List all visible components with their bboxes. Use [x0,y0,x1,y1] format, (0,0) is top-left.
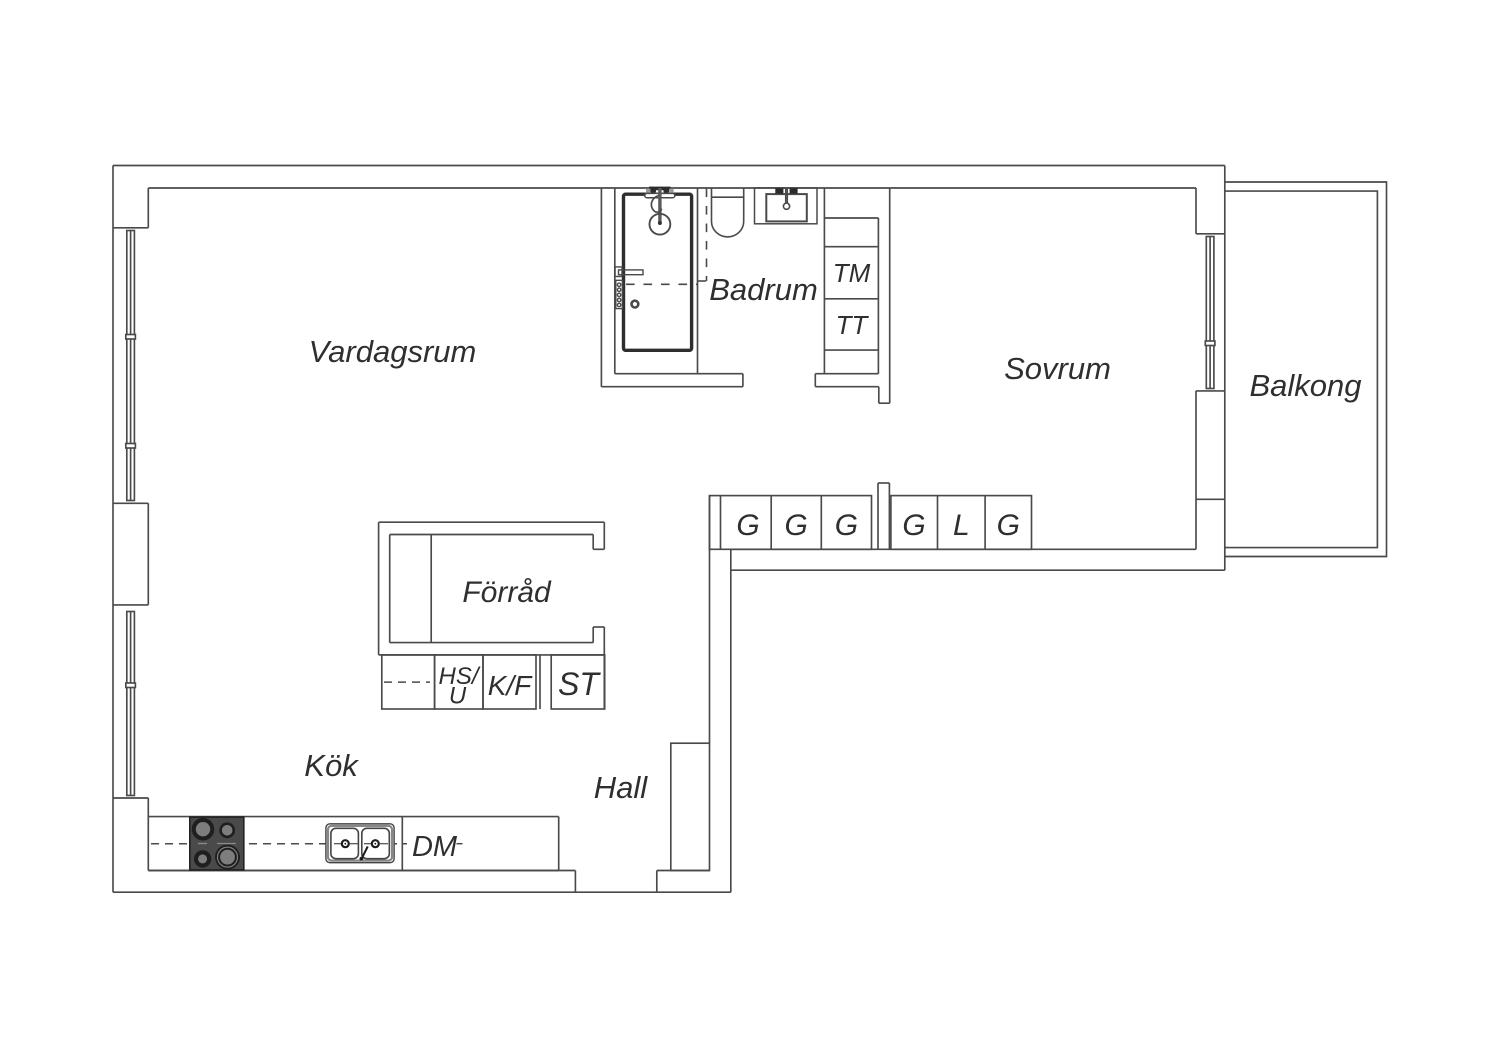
svg-text:G: G [902,509,925,542]
svg-text:DM: DM [412,831,458,863]
svg-text:Hall: Hall [594,770,649,805]
svg-text:Sovrum: Sovrum [1004,351,1111,386]
svg-text:Vardagsrum: Vardagsrum [309,334,477,369]
svg-text:Balkong: Balkong [1249,368,1361,403]
svg-text:Badrum: Badrum [709,272,818,307]
svg-text:TM: TM [833,258,871,288]
svg-text:ST: ST [558,666,601,702]
svg-text:G: G [997,509,1020,542]
svg-text:Förråd: Förråd [462,576,552,609]
svg-text:G: G [785,509,808,542]
svg-text:G: G [835,509,858,542]
svg-text:L: L [953,509,970,542]
svg-text:K/F: K/F [488,670,533,701]
svg-text:Kök: Kök [304,748,359,783]
svg-text:G: G [736,509,759,542]
svg-text:U: U [449,683,467,710]
svg-text:TT: TT [836,310,870,340]
